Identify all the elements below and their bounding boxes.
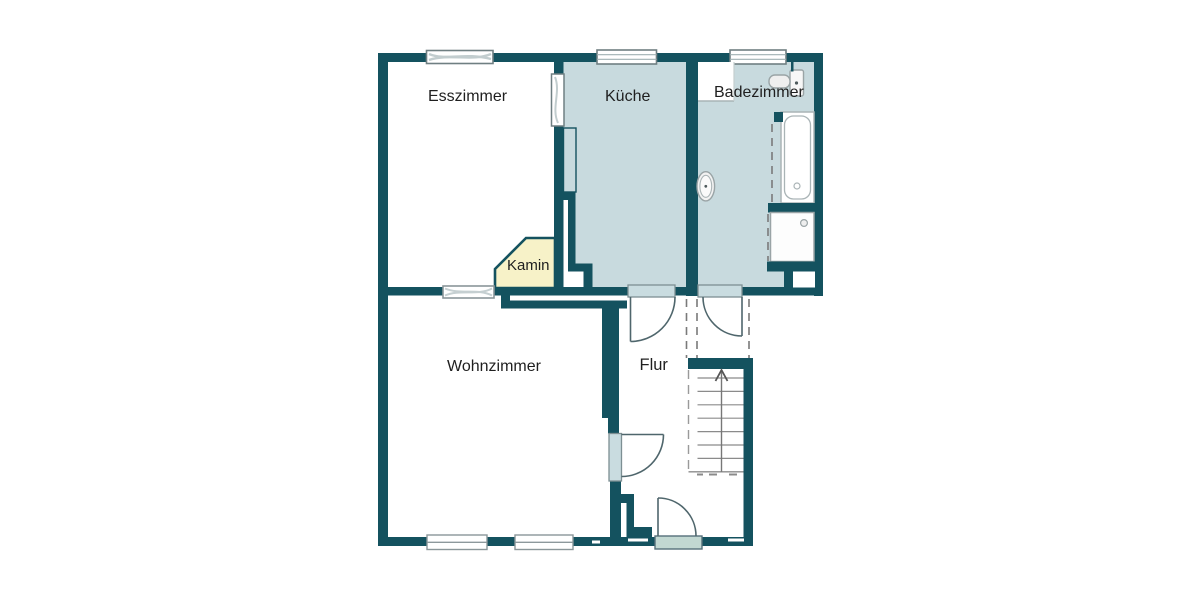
svg-text:Esszimmer: Esszimmer — [428, 88, 508, 105]
svg-text:Küche: Küche — [605, 88, 650, 105]
svg-text:Flur: Flur — [640, 356, 669, 374]
svg-text:Badezimmer: Badezimmer — [714, 84, 804, 101]
svg-text:Kamin: Kamin — [507, 257, 550, 274]
svg-text:Wohnzimmer: Wohnzimmer — [447, 358, 542, 375]
